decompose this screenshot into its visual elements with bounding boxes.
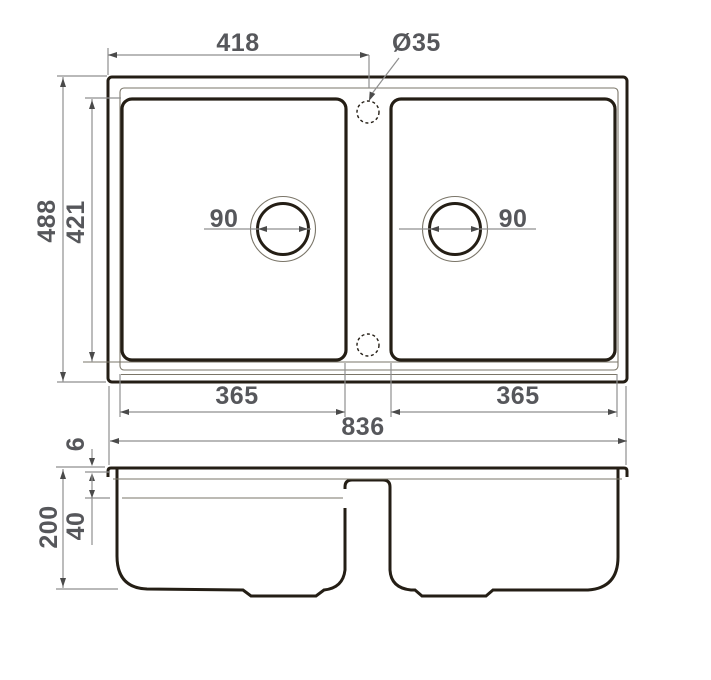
section-view-dimensions: 6 40 200 xyxy=(35,437,118,589)
dim-label-6: 6 xyxy=(62,437,90,451)
dim-label-488: 488 xyxy=(33,199,61,242)
dim-label-90-right: 90 xyxy=(499,205,528,233)
dim-40: 40 xyxy=(62,474,110,545)
dim-90-right: 90 xyxy=(399,205,536,233)
dim-label-40: 40 xyxy=(62,512,90,541)
dim-label-421: 421 xyxy=(62,200,90,243)
inner-ledge-rect xyxy=(120,88,618,370)
sink-drawing-canvas: 418 Ø35 488 421 xyxy=(0,0,711,675)
tap-hole-dashed-circle-bottom xyxy=(357,334,379,356)
dim-365-left: 365 xyxy=(120,363,345,417)
tap-hole-dashed-circle-top xyxy=(357,101,379,123)
dim-label-200: 200 xyxy=(35,505,63,548)
top-view xyxy=(83,77,627,382)
section-view xyxy=(108,468,627,596)
technical-drawing: 418 Ø35 488 421 xyxy=(0,0,711,675)
dim-label-836: 836 xyxy=(341,413,384,441)
dim-label-365-left: 365 xyxy=(215,382,258,410)
dim-label-o35: Ø35 xyxy=(392,29,441,57)
dim-418: 418 xyxy=(108,29,369,88)
dim-label-90-left: 90 xyxy=(210,205,239,233)
dim-label-418: 418 xyxy=(216,29,259,57)
section-rim xyxy=(108,468,627,477)
dim-421: 421 xyxy=(62,98,121,362)
dim-365-right: 365 xyxy=(391,363,617,417)
dim-label-365-right: 365 xyxy=(496,382,539,410)
dim-836: 836 xyxy=(109,386,627,465)
dim-tap-hole: Ø35 xyxy=(369,29,441,101)
section-bowls-profile xyxy=(117,469,618,596)
